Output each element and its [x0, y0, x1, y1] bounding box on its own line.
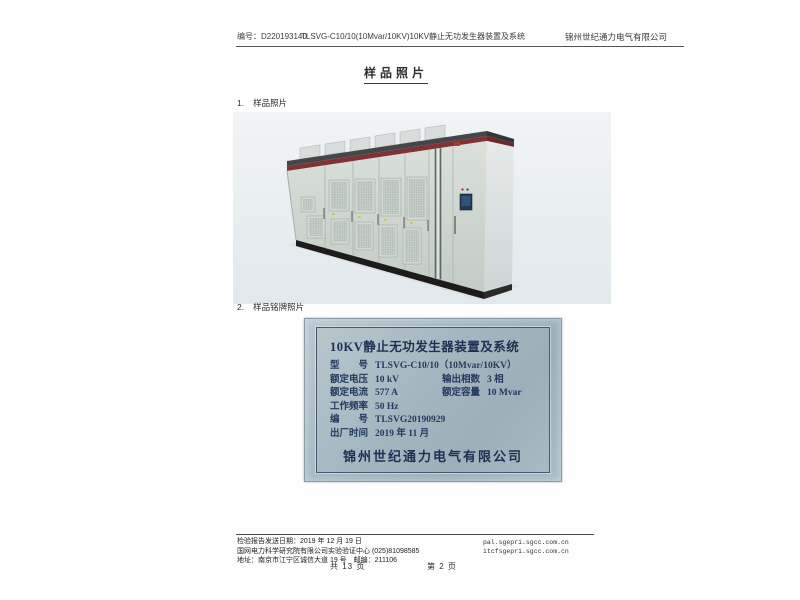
report-page: 编号：D220193140 TLSVG-C10/10(10Mvar/10KV)1…: [0, 0, 800, 600]
footer-url-1: pal.sgepri.sgcc.com.cn: [483, 538, 569, 547]
section-2-heading: 2.样品铭牌照片: [237, 301, 304, 313]
section-1-number: 1.: [237, 98, 244, 108]
model-value: TLSVG-C10/10（10Mvar/10KV）: [375, 360, 516, 374]
page-title: 样品照片: [364, 64, 428, 84]
capacity-label: 额定容量: [442, 387, 482, 401]
capacity-value: 10 Mvar: [487, 387, 522, 401]
model-label: 型 号: [330, 360, 370, 374]
current-label: 额定电流: [330, 387, 370, 401]
current-page: 第 2 页: [427, 561, 457, 572]
nameplate-row-frequency: 工作频率 50 Hz: [330, 401, 549, 415]
section-2-number: 2.: [237, 302, 244, 312]
striped-door: [436, 148, 441, 279]
report-header-company: 锦州世纪通力电气有限公司: [565, 31, 667, 43]
nameplate-frame: 10KV静止无功发生器装置及系统 型 号 TLSVG-C10/10（10Mvar…: [316, 327, 550, 473]
section-2-title: 样品铭牌照片: [253, 302, 304, 312]
footer-address: 地址：南京市江宁区诚信大道 19 号 邮编：211106: [237, 556, 419, 566]
serial-label: 编 号: [330, 414, 370, 428]
nameplate-photo: 10KV静止无功发生器装置及系统 型 号 TLSVG-C10/10（10Mvar…: [304, 318, 562, 482]
footer-send-date: 检验报告发送日期：2019 年 12 月 19 日: [237, 537, 419, 547]
section-1-heading: 1.样品照片: [237, 97, 287, 109]
date-label: 出厂时间: [330, 428, 370, 442]
footer-urls: pal.sgepri.sgcc.com.cn itcfsgepri.sgcc.c…: [483, 538, 569, 556]
cabinet-side-face: [484, 141, 514, 292]
nameplate-row-voltage: 额定电压 10 kV 输出相数 3 相: [330, 374, 549, 388]
report-header-title: TLSVG-C10/10(10Mvar/10KV)10KV静止无功发生器装置及系…: [301, 31, 525, 42]
nameplate-title: 10KV静止无功发生器装置及系统: [330, 336, 549, 355]
doc-number: 编号：D220193140: [237, 31, 307, 42]
voltage-label: 额定电压: [330, 374, 370, 388]
sample-photo: [233, 112, 611, 304]
nameplate-company: 锦州世纪通力电气有限公司: [317, 446, 549, 465]
section-1-title: 样品照片: [253, 98, 287, 108]
header-divider: [236, 46, 684, 47]
serial-value: TLSVG20190929: [375, 414, 445, 428]
phase-label: 输出相数: [442, 374, 482, 388]
nameplate-row-current: 额定电流 577 A 额定容量 10 Mvar: [330, 387, 549, 401]
brand-logo-mark: [454, 142, 460, 146]
footer-divider: [236, 534, 594, 535]
footer-info: 检验报告发送日期：2019 年 12 月 19 日 国网电力科学研究院有限公司实…: [237, 537, 419, 566]
nameplate-row-serial: 编 号 TLSVG20190929: [330, 414, 549, 428]
voltage-value: 10 kV: [375, 374, 399, 388]
total-pages: 共 13 页: [330, 561, 365, 572]
nameplate-row-model: 型 号 TLSVG-C10/10（10Mvar/10KV）: [330, 360, 549, 374]
frequency-value: 50 Hz: [375, 401, 398, 415]
phase-value: 3 相: [487, 374, 504, 388]
nameplate-row-date: 出厂时间 2019 年 11 月: [330, 428, 549, 442]
cabinet-lineup-illustration: [233, 112, 611, 304]
footer-organization: 国网电力科学研究院有限公司实验验证中心 (025)81098585: [237, 547, 419, 557]
footer-url-2: itcfsgepri.sgcc.com.cn: [483, 547, 569, 556]
frequency-label: 工作频率: [330, 401, 370, 415]
date-value: 2019 年 11 月: [375, 428, 429, 442]
current-value: 577 A: [375, 387, 398, 401]
